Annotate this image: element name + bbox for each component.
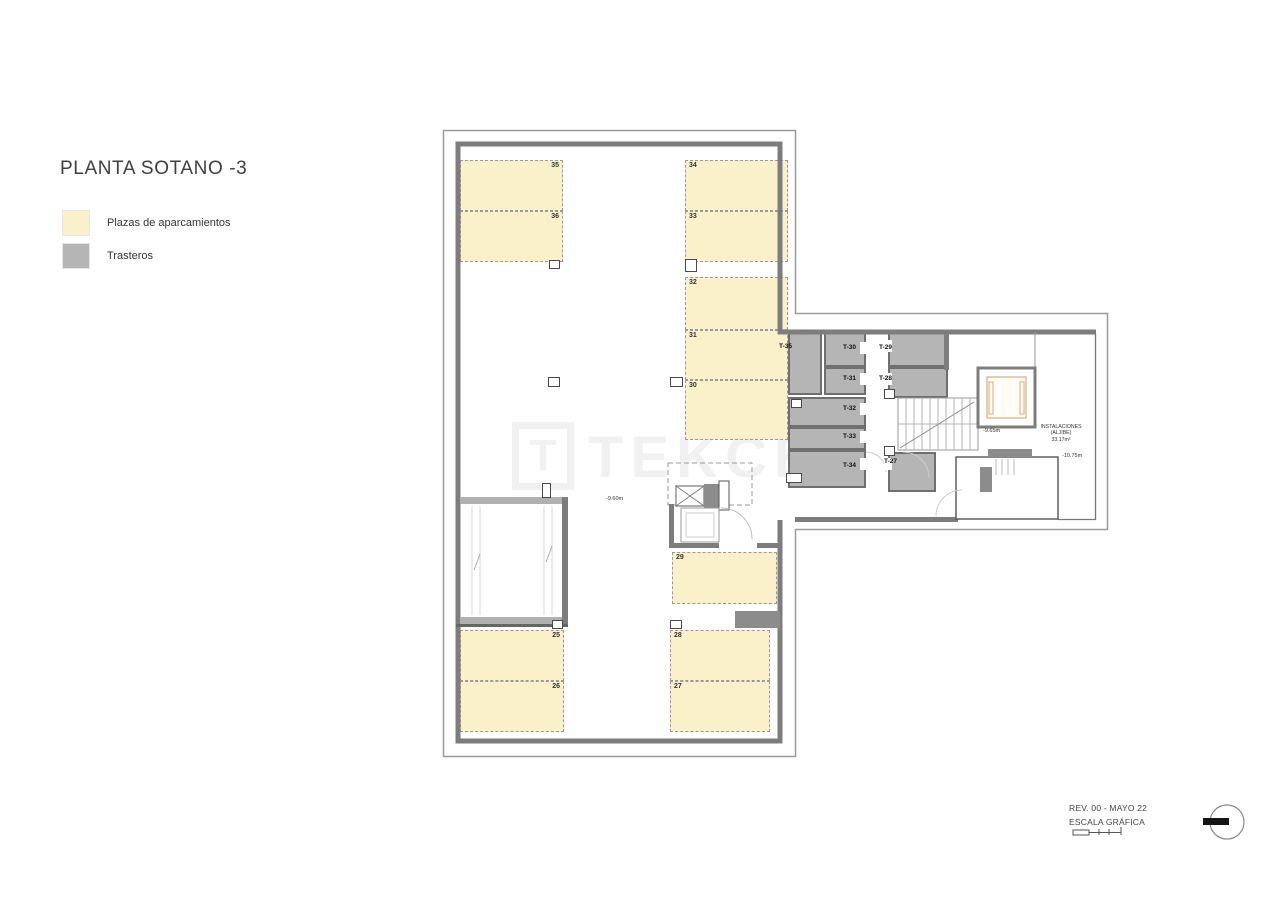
storage-label: T-33	[843, 433, 856, 440]
storage-label: T-32	[843, 405, 856, 412]
outer-boundary	[444, 131, 1108, 757]
main-walls	[458, 144, 780, 741]
scale-bar	[1073, 827, 1121, 835]
column	[791, 399, 802, 408]
legend-label-parking: Plazas de aparcamientos	[107, 217, 231, 229]
column	[542, 483, 551, 498]
elevator-lobby-main	[668, 463, 780, 628]
storage-label: T-34	[843, 462, 856, 469]
page-title: PLANTA SOTANO -3	[60, 158, 247, 180]
storage-label: T-27	[884, 458, 897, 465]
column	[548, 377, 560, 387]
revision-text: REV. 00 - MAYO 22	[1069, 803, 1147, 813]
instalaciones-label: INSTALACIONES (ALJIBE) 33.17m²	[1030, 424, 1092, 443]
storage-label: T-31	[843, 375, 856, 382]
legend-label-storage: Trasteros	[107, 250, 153, 262]
marker-circle-icon	[1203, 805, 1244, 839]
staircase	[898, 398, 978, 450]
legend-swatch-parking	[62, 210, 90, 236]
column	[552, 620, 563, 629]
instalaciones-line3: 33.17m²	[1030, 437, 1092, 443]
ramp	[456, 497, 568, 627]
column	[549, 260, 560, 269]
level-annotation-lift: -9.65m	[983, 428, 1000, 434]
legend-swatch-storage	[62, 243, 90, 269]
column	[786, 473, 802, 483]
column	[685, 259, 697, 272]
column	[884, 389, 895, 399]
level-annotation-right: -10.75m	[1062, 453, 1082, 459]
scale-label: ESCALA GRÁFICA	[1069, 817, 1145, 827]
column	[884, 446, 895, 456]
storage-label: T-29	[879, 344, 892, 351]
storage-label: T-30	[843, 344, 856, 351]
floor-plan-page: PLANTA SOTANO -3 Plazas de aparcamientos…	[0, 0, 1280, 905]
column	[670, 377, 683, 387]
instalaciones-room	[956, 457, 1058, 519]
storage-label: T-28	[879, 375, 892, 382]
plan-linework	[0, 0, 1280, 905]
column	[670, 620, 682, 629]
level-annotation-main: -9.60m	[606, 496, 623, 502]
storage-label: T-35	[779, 343, 792, 350]
